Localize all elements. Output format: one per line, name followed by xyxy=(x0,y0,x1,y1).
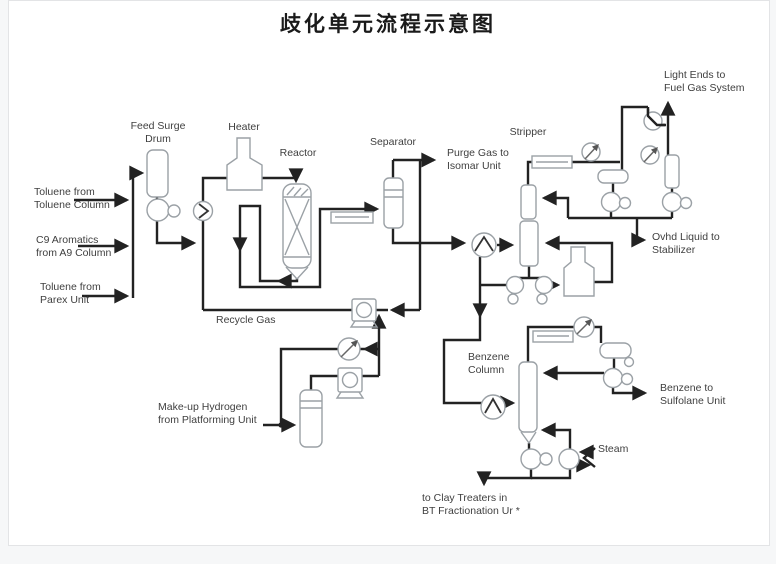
stripper-column xyxy=(520,185,538,266)
label-benzene-column: Benzene Column xyxy=(468,351,524,376)
light-ends-valve xyxy=(644,109,665,130)
label-parex-feed: Toluene from Parex Unit xyxy=(40,281,140,306)
benzene-bottoms-pump xyxy=(521,449,552,469)
label-clay-treaters: to Clay Treaters in BT Fractionation Ur … xyxy=(422,492,552,517)
pipe-reboiler-to-column xyxy=(543,430,570,450)
pipe-ovhd-liquid xyxy=(637,218,644,240)
benzene-condenser xyxy=(533,331,573,342)
makeup-ko-drum xyxy=(300,390,322,447)
stripper-reboiler xyxy=(564,247,594,296)
label-reactor: Reactor xyxy=(268,147,328,160)
separator-vessel xyxy=(384,178,403,228)
label-ovhd-liquid: Ovhd Liquid to Stabilizer xyxy=(652,231,752,256)
label-c9-feed: C9 Aromatics from A9 Column xyxy=(36,234,136,259)
label-heater: Heater xyxy=(214,121,274,134)
flow-instrument-fuelgas xyxy=(641,146,659,164)
label-steam: Steam xyxy=(598,443,648,456)
label-makeup-hydrogen: Make-up Hydrogen from Platforming Unit xyxy=(158,401,283,426)
feed-surge-drum-vessel xyxy=(147,150,168,197)
benzene-feed-valve xyxy=(481,395,505,419)
stripper-reflux-drum xyxy=(598,170,628,183)
steam-reboiler xyxy=(559,449,579,469)
flow-instrument-makeup xyxy=(338,338,360,360)
pipe-pump-discharge xyxy=(157,220,194,243)
pipe-reactor-effluent xyxy=(279,278,297,281)
pipe-benzene-product xyxy=(613,387,645,393)
pipe-separator-liquid xyxy=(393,228,464,243)
flow-instrument-benzene xyxy=(574,317,594,337)
ovhd-pumps xyxy=(602,193,692,212)
label-benzene-product: Benzene to Sulfolane Unit xyxy=(660,382,760,407)
feed-effluent-exchanger xyxy=(331,212,373,223)
makeup-compressor xyxy=(337,368,363,398)
label-recycle-gas: Recycle Gas xyxy=(216,314,296,327)
feed-pump xyxy=(147,199,180,221)
flow-instrument-stripper xyxy=(582,143,600,161)
label-light-ends: Light Ends to Fuel Gas System xyxy=(664,69,766,94)
fuel-gas-ko-pot xyxy=(665,155,679,188)
stripper-bottoms-pumps xyxy=(507,277,553,305)
pipe-riser xyxy=(203,178,230,310)
label-toluene-feed: Toluene from Toluene Column xyxy=(34,186,134,211)
benzene-reflux-pump xyxy=(604,369,633,388)
label-separator: Separator xyxy=(358,136,428,149)
label-purge-gas: Purge Gas to Isomar Unit xyxy=(447,147,539,172)
heater-furnace xyxy=(227,138,262,190)
pipe-stripper-reflux xyxy=(544,198,568,218)
label-feed-surge-drum: Feed Surge Drum xyxy=(118,120,198,145)
letdown-valve xyxy=(472,233,496,257)
label-stripper: Stripper xyxy=(499,126,557,139)
recycle-compressor xyxy=(351,299,377,327)
flow-diagram: 歧化单元流程示意图 xyxy=(0,0,776,564)
reactor-vessel xyxy=(283,184,311,279)
benzene-reflux-drum xyxy=(600,343,634,367)
mixing-valve xyxy=(194,202,213,221)
